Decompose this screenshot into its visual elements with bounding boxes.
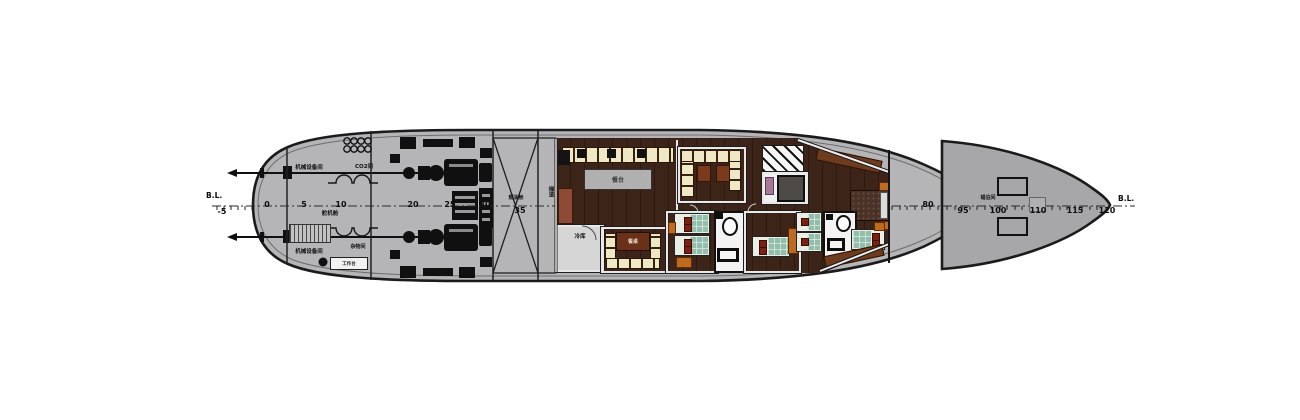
bed bbox=[674, 213, 710, 234]
lounge-sofa-left bbox=[681, 161, 694, 197]
mess-table: 餐桌 bbox=[616, 232, 650, 251]
fridge-icon bbox=[558, 150, 570, 165]
station-mark: 95 bbox=[957, 207, 968, 215]
station-mark: 30 bbox=[479, 201, 490, 209]
nightstand bbox=[668, 222, 676, 234]
lounge-sofa-right bbox=[729, 161, 741, 191]
galley-cabinet bbox=[558, 188, 573, 224]
aft-stairs bbox=[289, 224, 331, 243]
forward-stairs bbox=[762, 145, 804, 172]
station-mark: 35 bbox=[514, 207, 525, 215]
cooktop-icon bbox=[607, 149, 616, 158]
stair-lobby-label: 梯道 bbox=[547, 186, 553, 197]
bed-pillow bbox=[801, 238, 809, 246]
station-mark: -5 bbox=[218, 208, 227, 216]
bed-blanket bbox=[808, 214, 820, 230]
co2-room-label: CO2间 bbox=[355, 165, 373, 171]
bed-blanket bbox=[690, 237, 708, 254]
windlass-box bbox=[997, 217, 1028, 236]
mess-chairs-bottom bbox=[606, 258, 660, 269]
bed-pillow bbox=[759, 247, 767, 255]
nightstand bbox=[879, 182, 890, 191]
double-bed-pillow bbox=[880, 192, 888, 219]
bed bbox=[796, 232, 822, 252]
wardrobe bbox=[676, 257, 692, 268]
bed bbox=[796, 212, 822, 232]
mess-table-label: 餐桌 bbox=[628, 238, 638, 245]
toilet-icon bbox=[836, 215, 851, 232]
baseline-label-left: B.L. bbox=[206, 192, 222, 200]
station-mark: 80 bbox=[922, 201, 933, 209]
baseline-label-right: B.L. bbox=[1118, 195, 1134, 203]
steering-gear-label: 舵机舱 bbox=[322, 212, 339, 218]
galley-island-label: 餐台 bbox=[612, 175, 624, 184]
bed-blanket bbox=[853, 231, 871, 248]
armchair bbox=[716, 165, 730, 182]
toilet-icon bbox=[722, 217, 738, 236]
armchair bbox=[697, 165, 711, 182]
tank-label: 燃油舱 bbox=[508, 196, 523, 201]
machinery-room-top-label: 机械设备间 bbox=[295, 166, 323, 172]
station-mark: 0 bbox=[264, 201, 270, 209]
mess-chairs-right bbox=[650, 233, 661, 259]
station-mark: 110 bbox=[1030, 207, 1047, 215]
shower-tray-inner bbox=[720, 251, 736, 259]
bed-blanket bbox=[690, 215, 708, 232]
anchor-room-label: 锚泊间 bbox=[980, 196, 995, 201]
bed-blanket bbox=[768, 238, 788, 255]
station-mark: 25 bbox=[444, 201, 455, 209]
cold-store: 冷库 bbox=[556, 225, 604, 272]
cold-store-label: 冷库 bbox=[574, 235, 585, 241]
station-mark: 10 bbox=[335, 201, 346, 209]
bed bbox=[752, 236, 790, 257]
shower-tray-inner bbox=[830, 241, 842, 248]
sink-icon bbox=[826, 214, 833, 220]
station-mark: 115 bbox=[1067, 207, 1084, 215]
bed-pillow bbox=[684, 246, 692, 254]
shower-tray bbox=[777, 175, 805, 202]
bow-section-outline bbox=[942, 141, 1110, 269]
galley-island: 餐台 bbox=[584, 169, 652, 190]
bed bbox=[674, 235, 710, 256]
towel-rack bbox=[765, 177, 774, 195]
deck-plan-drawing: 餐台 冷库 餐桌 bbox=[0, 0, 1300, 420]
station-mark: 100 bbox=[990, 207, 1007, 215]
bed-pillow bbox=[801, 218, 809, 226]
station-mark: 5 bbox=[301, 201, 307, 209]
machinery-room-bottom-label: 机械设备间 bbox=[295, 250, 323, 256]
sink-icon bbox=[716, 212, 723, 219]
cooktop-icon bbox=[577, 149, 586, 158]
station-mark: 20 bbox=[407, 201, 418, 209]
cooktop-icon bbox=[637, 149, 646, 158]
bed-pillow bbox=[684, 224, 692, 232]
mess-chairs-left bbox=[605, 233, 616, 259]
station-mark: 120 bbox=[1099, 207, 1116, 215]
workbench: 工作台 bbox=[330, 257, 368, 270]
store-room-label: 杂物间 bbox=[350, 245, 365, 250]
bed-blanket bbox=[808, 234, 820, 250]
workbench-label: 工作台 bbox=[342, 261, 356, 267]
nightstand bbox=[874, 222, 885, 231]
windlass-box bbox=[997, 177, 1028, 196]
